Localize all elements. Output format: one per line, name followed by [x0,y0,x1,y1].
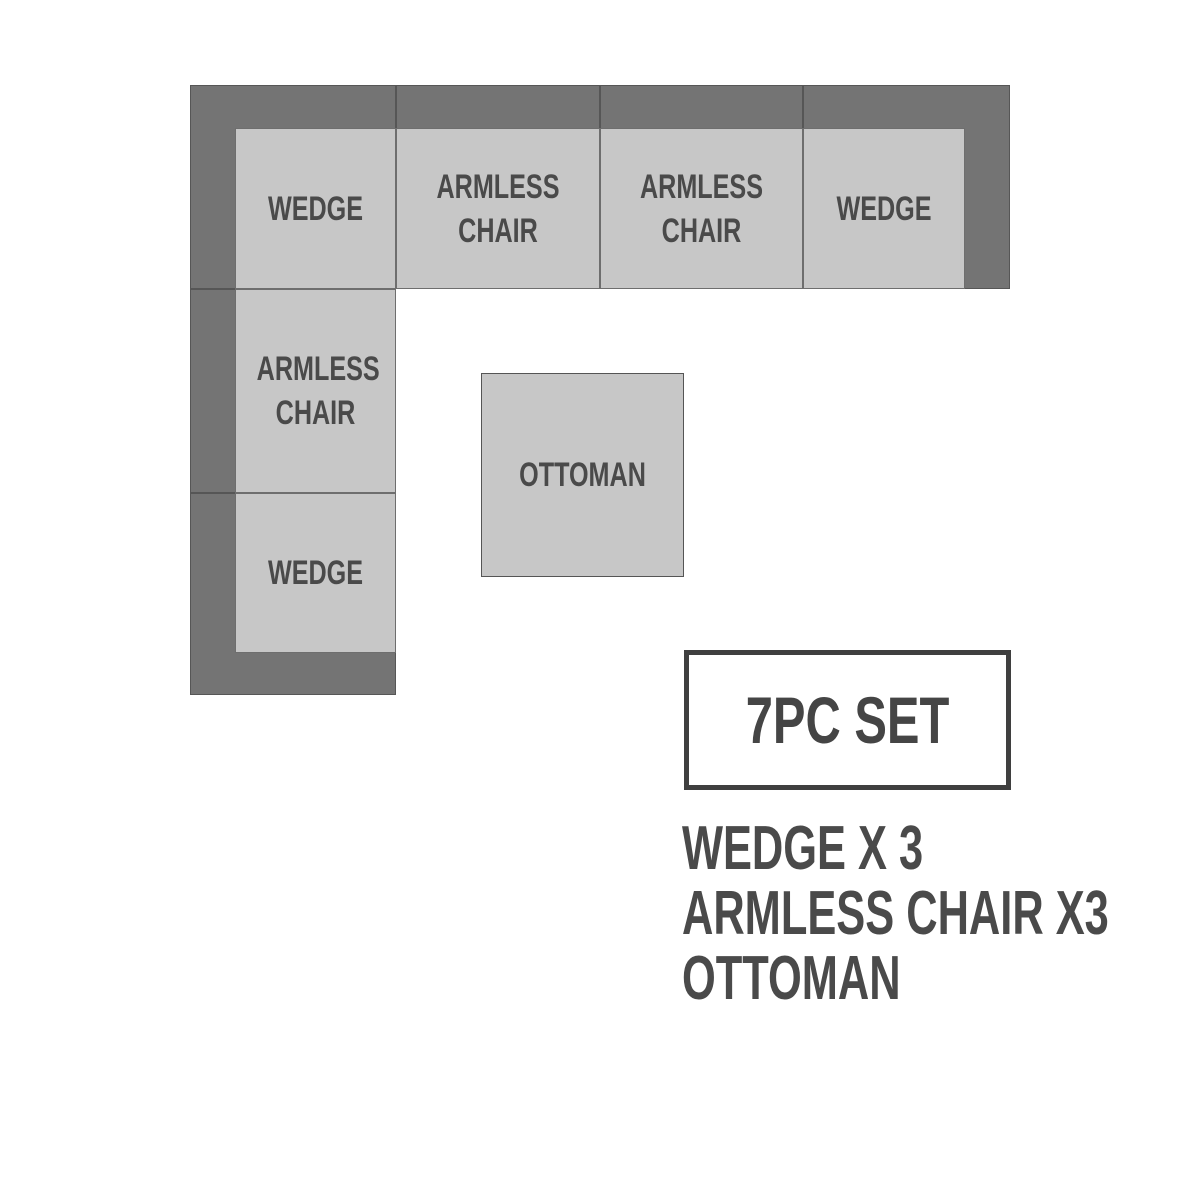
armless-chair-top-2-seat: ARMLESS CHAIR [600,128,803,289]
set-count-title: 7PC SET [746,682,950,758]
wedge-bottom-left-seat: WEDGE [235,493,396,653]
armless-chair-top-1-seat: ARMLESS CHAIR [396,128,600,289]
wedge-top-right-label: WEDGE [825,187,943,231]
set-contents-list: WEDGE X 3 ARMLESS CHAIR X3 OTTOMAN [682,816,1182,1011]
legend-item-armless-chair: ARMLESS CHAIR X3 [682,881,1032,946]
wedge-top-left-seat: WEDGE [235,128,396,289]
wedge-top-right-seat: WEDGE [803,128,965,289]
ottoman-label: OTTOMAN [508,453,657,497]
legend-item-wedge: WEDGE X 3 [682,816,1032,881]
armless-chair-top-2-label: ARMLESS CHAIR [627,165,776,253]
set-count-box: 7PC SET [684,650,1011,790]
armless-chair-left-seat: ARMLESS CHAIR [235,289,396,493]
wedge-bottom-left-label: WEDGE [257,551,375,595]
ottoman-seat: OTTOMAN [481,373,684,577]
wedge-top-left-label: WEDGE [257,187,375,231]
legend-item-ottoman: OTTOMAN [682,946,1032,1011]
sectional-set-diagram: WEDGE ARMLESS CHAIR ARMLESS CHAIR WEDGE … [0,0,1200,1200]
armless-chair-left-label: ARMLESS CHAIR [257,347,375,435]
armless-chair-top-1-label: ARMLESS CHAIR [423,165,572,253]
